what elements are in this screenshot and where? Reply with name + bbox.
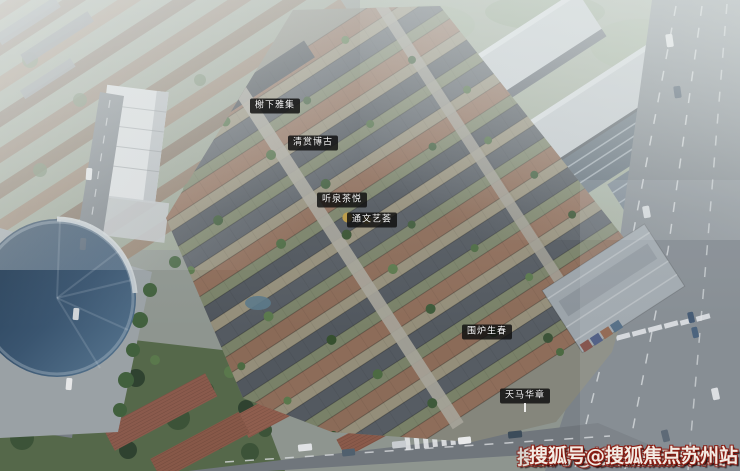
map-label-1: 榭下雅集 bbox=[250, 99, 300, 114]
map-label-5: 围炉生春 bbox=[462, 325, 512, 340]
watermark: 搜狐号@搜狐焦点苏州站 搜狐号@搜狐焦点苏州站 bbox=[529, 446, 738, 468]
map-label-6: 天马华章 bbox=[500, 389, 550, 404]
map-label-4: 通文艺荟 bbox=[347, 213, 397, 228]
watermark-text: 搜狐号@搜狐焦点苏州站 bbox=[529, 445, 738, 467]
label-leader-line bbox=[524, 403, 526, 412]
aerial-render bbox=[0, 0, 740, 471]
map-label-2: 清赏博古 bbox=[288, 136, 338, 151]
aerial-screenshot-root: 榭下雅集 清赏博古 听泉茶悦 通文艺荟 围炉生春 天马华章 搜狐号@搜狐焦点苏州… bbox=[0, 0, 740, 471]
map-label-3: 听泉茶悦 bbox=[317, 193, 367, 208]
fog-overlays bbox=[0, 0, 740, 471]
